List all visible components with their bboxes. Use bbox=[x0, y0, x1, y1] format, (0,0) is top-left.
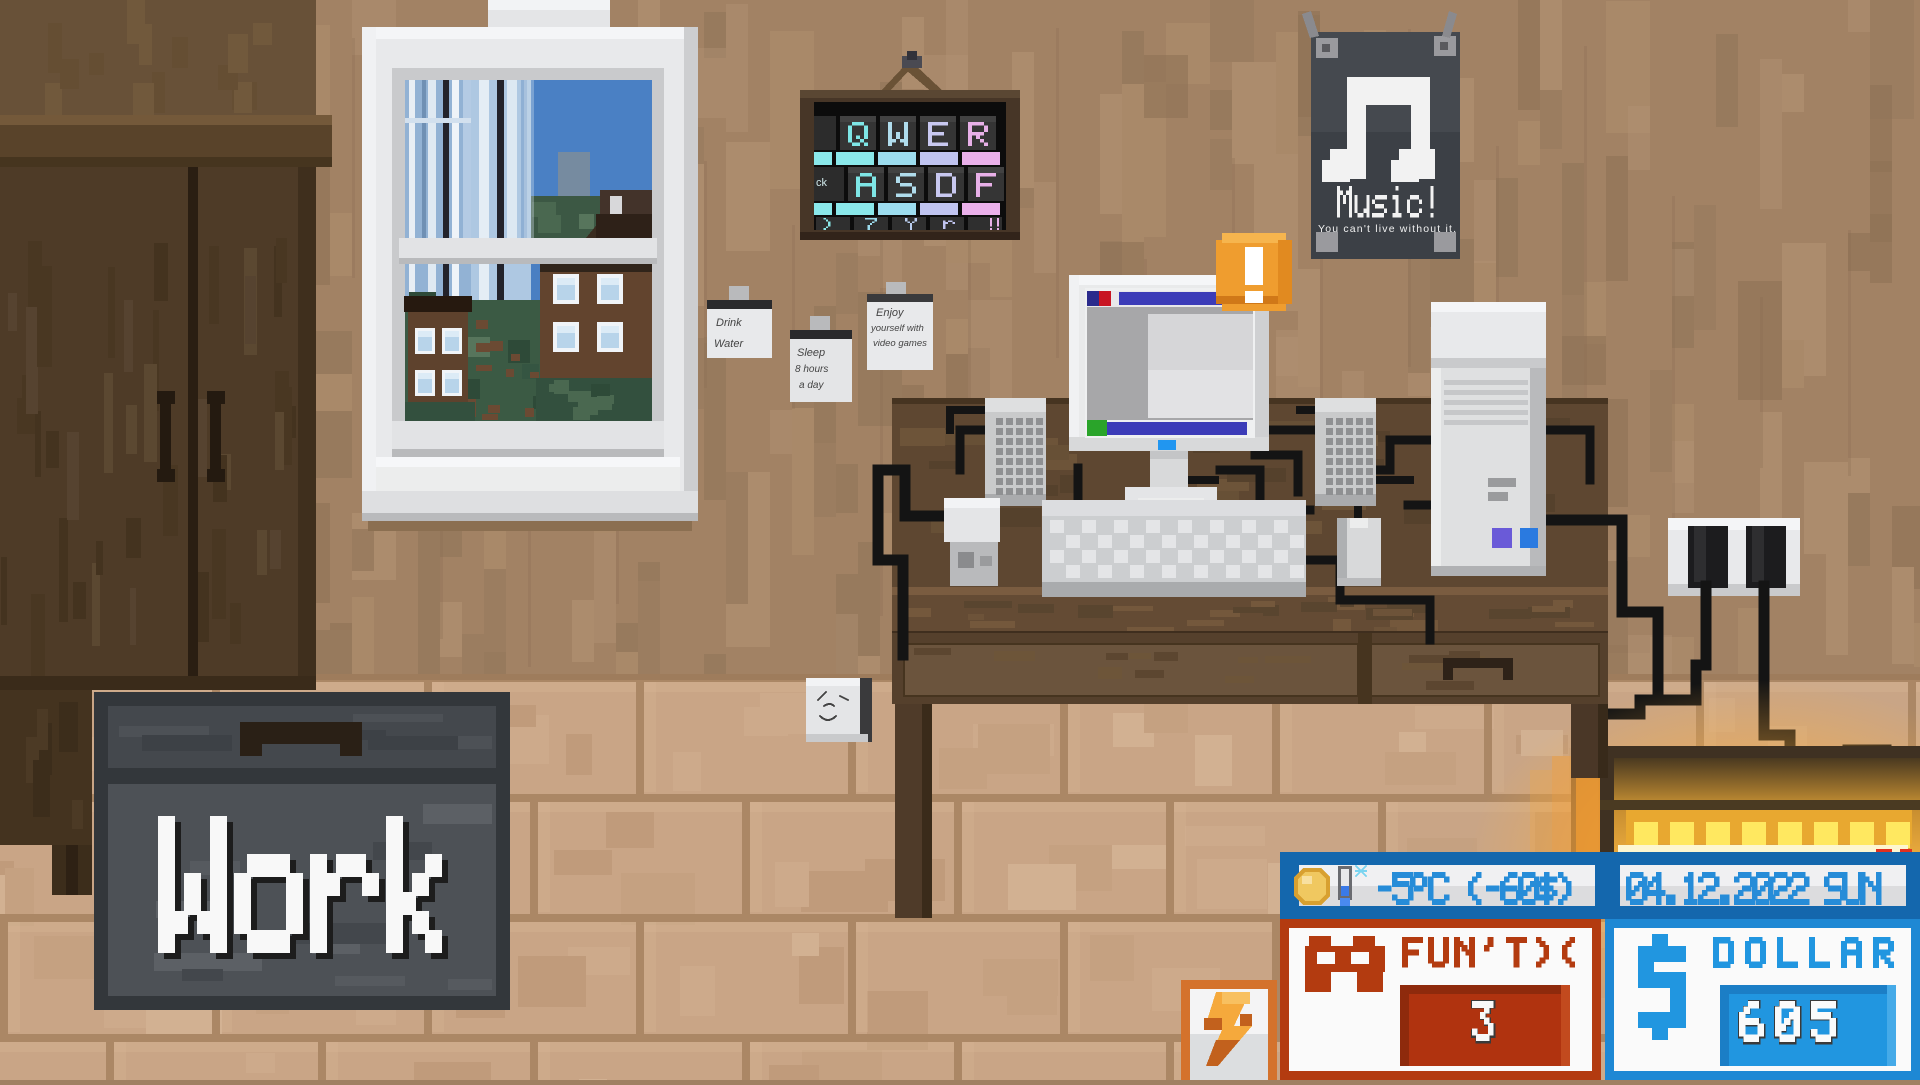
svg-text:yourself with: yourself with bbox=[870, 323, 924, 334]
svg-text:Sleep: Sleep bbox=[797, 347, 825, 359]
svg-text:8 hours: 8 hours bbox=[795, 364, 828, 375]
svg-text:Enjoy: Enjoy bbox=[876, 307, 905, 319]
svg-text:video games: video games bbox=[873, 338, 927, 349]
svg-text:ck: ck bbox=[816, 177, 828, 189]
svg-text:Drink: Drink bbox=[716, 317, 742, 329]
svg-text:You can't live without it.: You can't live without it. bbox=[1318, 223, 1456, 235]
svg-text:a day: a day bbox=[799, 380, 824, 391]
svg-text:Water: Water bbox=[714, 338, 744, 350]
